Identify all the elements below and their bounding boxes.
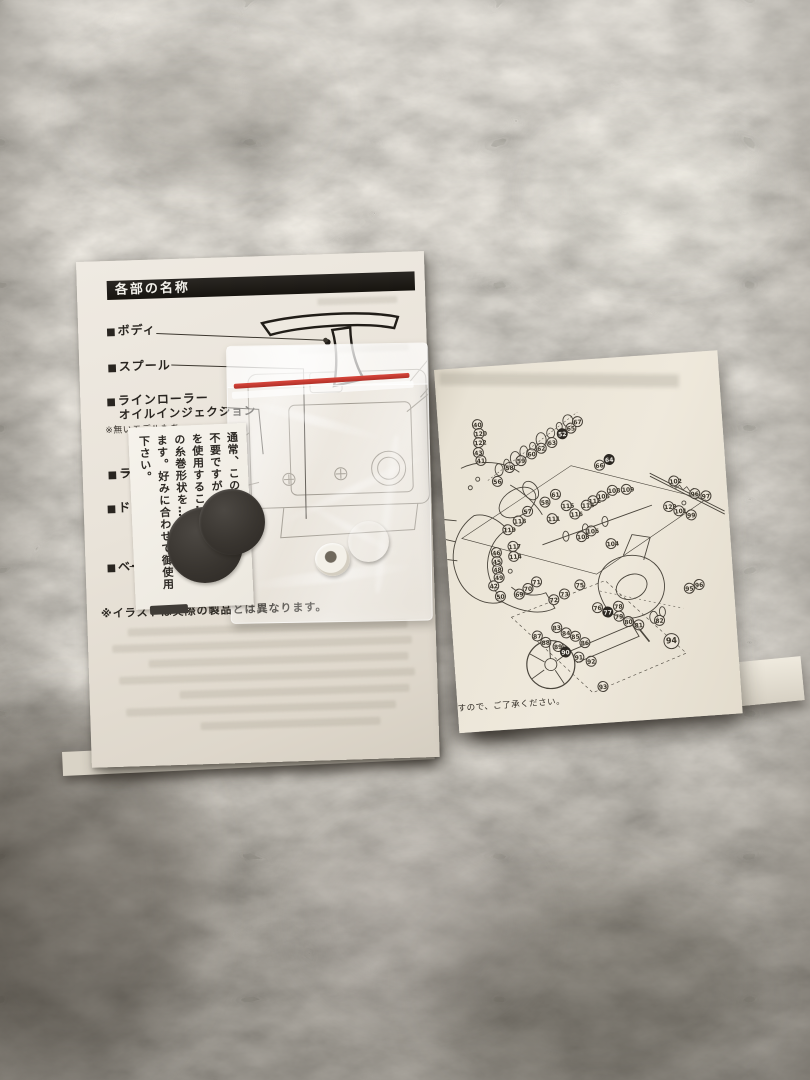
part-callout: 92 (585, 655, 597, 667)
part-callout: 67 (572, 416, 584, 428)
square-bullet-icon: ■ (106, 397, 117, 408)
part-callout: 96 (693, 579, 705, 591)
part-callout: 118 (512, 515, 524, 527)
dark-adjustment-washer (199, 489, 265, 555)
part-callout: 61 (550, 488, 562, 500)
square-bullet-icon: ■ (106, 327, 117, 338)
part-callout: 63 (546, 437, 558, 449)
part-callout: 101 (673, 505, 685, 517)
part-callout: 86 (579, 637, 591, 649)
square-bullet-icon: ■ (107, 363, 118, 374)
part-callout: 62 (535, 442, 547, 454)
part-callout: 105 (585, 525, 597, 537)
photo-scene: 各部の名称 ■ボディ ■スプール ■ラインローラー オイルインジェクション ※無… (0, 0, 810, 1080)
part-callout: 91 (573, 651, 585, 663)
ball-bearing (348, 521, 389, 562)
square-bullet-icon: ■ (107, 504, 118, 515)
part-callout: 114 (508, 551, 520, 563)
part-callout: 99 (685, 509, 697, 521)
parts-schematic-page: 4012012243415658596062635265676664615758… (434, 350, 743, 733)
part-callout: 106 (596, 490, 608, 502)
white-washer (315, 543, 350, 576)
part-callout: 116 (569, 508, 581, 520)
part-callout: 41 (475, 455, 487, 467)
part-callout: 73 (559, 588, 571, 600)
part-callout: 119 (502, 524, 514, 536)
part-callout: 71 (531, 576, 543, 588)
part-callout: 77 (602, 606, 614, 618)
part-callout: 42 (488, 580, 500, 592)
part-callout: 108 (606, 484, 618, 496)
part-callout: 109 (620, 484, 632, 496)
part-callout: 111 (546, 513, 558, 525)
part-callout: 113 (580, 499, 592, 511)
part-callout: 96 (689, 488, 701, 500)
bag-crinkle-highlight (276, 449, 433, 528)
part-label-spool: ■スプール (107, 356, 171, 375)
exploded-diagram (434, 350, 743, 733)
part-callout: 81 (633, 619, 645, 631)
part-callout: 82 (654, 615, 666, 627)
plastic-parts-bag (226, 342, 433, 623)
part-callout: 58 (539, 496, 551, 508)
part-callout: 88 (540, 636, 552, 648)
part-callout: 75 (574, 579, 586, 591)
part-callout: 50 (495, 591, 507, 603)
part-callout: 90 (560, 646, 572, 658)
section-title: 各部の名称 (115, 280, 190, 297)
part-callout: 64 (603, 454, 615, 466)
bag-crinkle-highlight (240, 396, 387, 444)
part-callout: 104 (605, 538, 617, 550)
part-label-body: ■ボディ (106, 321, 156, 340)
part-callout: 97 (700, 490, 712, 502)
part-callout: 56 (492, 475, 504, 487)
square-bullet-icon: ■ (106, 563, 117, 574)
square-bullet-icon: ■ (108, 470, 119, 481)
part-callout: 102 (668, 475, 680, 487)
part-callout: 59 (515, 455, 527, 467)
part-callout: 58 (504, 462, 516, 474)
part-callout: 72 (548, 594, 560, 606)
part-callout: 57 (522, 505, 534, 517)
part-callout: 93 (597, 681, 609, 693)
